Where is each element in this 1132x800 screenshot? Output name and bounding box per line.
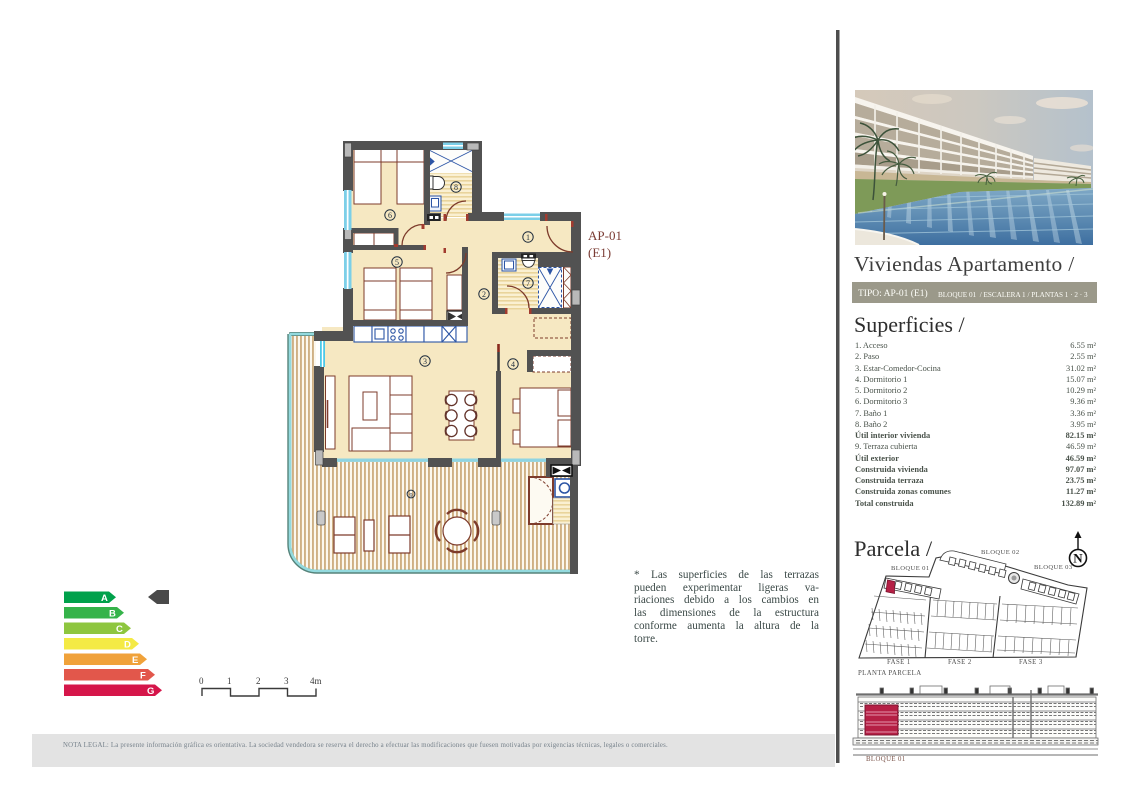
svg-text:9: 9 — [409, 492, 412, 499]
svg-text:A: A — [101, 593, 108, 604]
svg-text:7: 7 — [526, 279, 530, 288]
svg-text:1: 1 — [526, 233, 530, 242]
svg-text:3: 3 — [284, 676, 289, 686]
svg-text:C: C — [116, 624, 123, 635]
svg-text:2: 2 — [256, 676, 261, 686]
svg-text:4m: 4m — [310, 676, 322, 686]
svg-text:6: 6 — [388, 211, 392, 220]
svg-text:E: E — [132, 655, 138, 666]
svg-text:F: F — [140, 671, 146, 682]
svg-text:(E1): (E1) — [588, 245, 611, 260]
svg-text:8: 8 — [454, 183, 458, 192]
svg-text:G: G — [147, 686, 154, 697]
svg-text:B: B — [109, 609, 116, 620]
svg-text:D: D — [124, 640, 131, 651]
svg-text:0: 0 — [199, 676, 204, 686]
svg-text:5: 5 — [395, 258, 399, 267]
svg-text:N: N — [1073, 551, 1083, 566]
svg-text:4: 4 — [511, 360, 515, 369]
svg-text:3: 3 — [423, 357, 427, 366]
svg-text:1: 1 — [227, 676, 232, 686]
svg-text:AP-01: AP-01 — [588, 228, 622, 243]
svg-text:2: 2 — [482, 290, 486, 299]
